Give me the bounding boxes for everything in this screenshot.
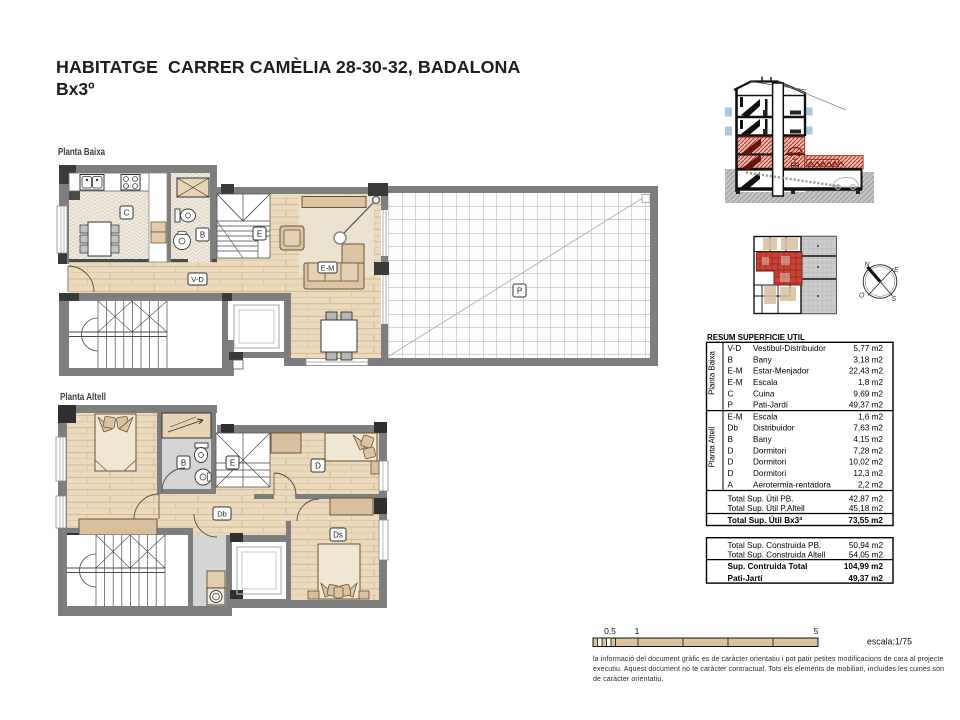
svg-text:7,63 m2: 7,63 m2 [853,424,883,433]
svg-text:Ds: Ds [333,531,343,540]
svg-text:12,3 m2: 12,3 m2 [853,469,883,478]
svg-text:Cuina: Cuina [753,389,775,398]
svg-text:Planta Baixa: Planta Baixa [58,146,105,158]
svg-text:7,28 m2: 7,28 m2 [853,446,883,455]
svg-text:0,5: 0,5 [604,626,616,636]
svg-text:E: E [257,230,262,239]
svg-text:E: E [230,459,235,468]
svg-text:B: B [728,355,734,364]
svg-text:Db: Db [217,510,227,519]
svg-text:la informació del document grà: la informació del document gràfic es de … [593,656,944,663]
svg-text:Pati-Jardí: Pati-Jardí [753,401,789,410]
svg-text:de caràcter orientatiu.: de caràcter orientatiu. [593,676,663,683]
svg-text:73,55 m2: 73,55 m2 [848,516,883,525]
svg-text:49,37 m2: 49,37 m2 [849,401,884,410]
svg-text:Dormitori: Dormitori [753,446,786,455]
svg-text:50,94 m2: 50,94 m2 [849,541,884,550]
svg-text:E: E [894,267,899,274]
svg-text:E-M: E-M [728,378,743,387]
svg-text:Total Sup. Útil Bx3ª: Total Sup. Útil Bx3ª [728,514,804,525]
svg-text:104,99 m2: 104,99 m2 [844,562,884,571]
svg-text:D: D [728,446,734,455]
svg-text:B: B [728,435,734,444]
svg-text:Total Sup. Útil PB.: Total Sup. Útil PB. [728,494,794,504]
svg-text:3,18 m2: 3,18 m2 [853,355,883,364]
svg-text:2,2 m2: 2,2 m2 [858,480,883,489]
svg-text:4,15 m2: 4,15 m2 [853,435,883,444]
svg-text:A: A [728,480,734,489]
svg-text:54,05 m2: 54,05 m2 [849,550,884,559]
svg-text:9,69 m2: 9,69 m2 [853,389,883,398]
svg-text:Dormitori: Dormitori [753,458,786,467]
svg-text:escala:1/75: escala:1/75 [867,637,912,647]
svg-text:22,43 m2: 22,43 m2 [849,367,884,376]
svg-text:RESUM SUPERFICIE UTIL: RESUM SUPERFICIE UTIL [707,333,805,342]
svg-text:Total Sup. Construida PB.: Total Sup. Construida PB. [728,541,822,550]
svg-text:Planta Altell: Planta Altell [60,391,106,403]
svg-text:1: 1 [635,626,640,636]
svg-text:Bany: Bany [753,435,773,444]
svg-text:42,87 m2: 42,87 m2 [849,495,884,504]
svg-text:D: D [315,462,321,471]
svg-text:Sup. Contruida Total: Sup. Contruida Total [728,562,808,571]
svg-text:Dormitori: Dormitori [753,469,786,478]
svg-text:P: P [517,287,522,296]
svg-text:1,6 m2: 1,6 m2 [858,412,883,421]
svg-text:Bany: Bany [753,355,773,364]
svg-text:C: C [124,209,130,218]
svg-text:Planta Altell: Planta Altell [708,426,717,467]
svg-text:Total Sup. Útil P.Altell: Total Sup. Útil P.Altell [728,503,805,513]
svg-text:1,8 m2: 1,8 m2 [858,378,883,387]
svg-text:Estar-Menjador: Estar-Menjador [753,367,809,376]
svg-text:V-D: V-D [191,275,204,284]
svg-text:O: O [859,293,865,300]
svg-text:Planta Baixa: Planta Baixa [708,350,717,394]
svg-text:Bx3º: Bx3º [56,79,95,99]
svg-text:executiu. Aquest document no t: executiu. Aquest document no te caràcter… [593,666,944,673]
svg-text:C: C [728,389,734,398]
svg-text:Db: Db [728,424,739,433]
svg-text:45,18 m2: 45,18 m2 [849,504,884,513]
svg-text:B: B [181,459,186,468]
svg-text:10,02 m2: 10,02 m2 [849,458,884,467]
svg-text:D: D [728,458,734,467]
svg-text:5: 5 [814,626,819,636]
svg-text:Vestibul-Distribuidor: Vestibul-Distribuidor [753,344,826,353]
svg-text:D: D [728,469,734,478]
svg-text:E-M: E-M [321,264,335,273]
svg-text:Escala: Escala [753,378,778,387]
svg-text:S: S [892,296,897,303]
svg-text:5,77 m2: 5,77 m2 [853,344,883,353]
svg-text:49,37 m2: 49,37 m2 [848,574,883,583]
svg-text:E-M: E-M [728,412,743,421]
svg-text:Total Sup. Construida Altell: Total Sup. Construida Altell [728,550,826,559]
svg-text:Escala: Escala [753,412,778,421]
svg-text:Pati-Jartí: Pati-Jartí [728,574,764,583]
svg-text:B: B [200,231,205,240]
svg-text:Aerotermia-rentadora: Aerotermia-rentadora [753,480,831,489]
svg-text:P: P [728,401,734,410]
svg-text:V-D: V-D [728,344,742,353]
svg-text:Distribuidor: Distribuidor [753,424,795,433]
svg-text:E-M: E-M [728,367,743,376]
svg-text:HABITATGE CARRER CAMÈLIA 28-3: HABITATGE CARRER CAMÈLIA 28-30-32, BADAL… [56,56,520,77]
